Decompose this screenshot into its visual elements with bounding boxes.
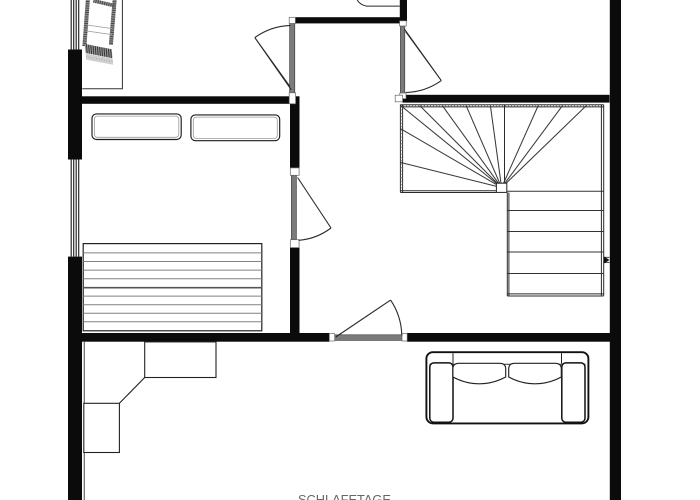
svg-text:SCHLAFETAGE: SCHLAFETAGE (298, 492, 391, 500)
